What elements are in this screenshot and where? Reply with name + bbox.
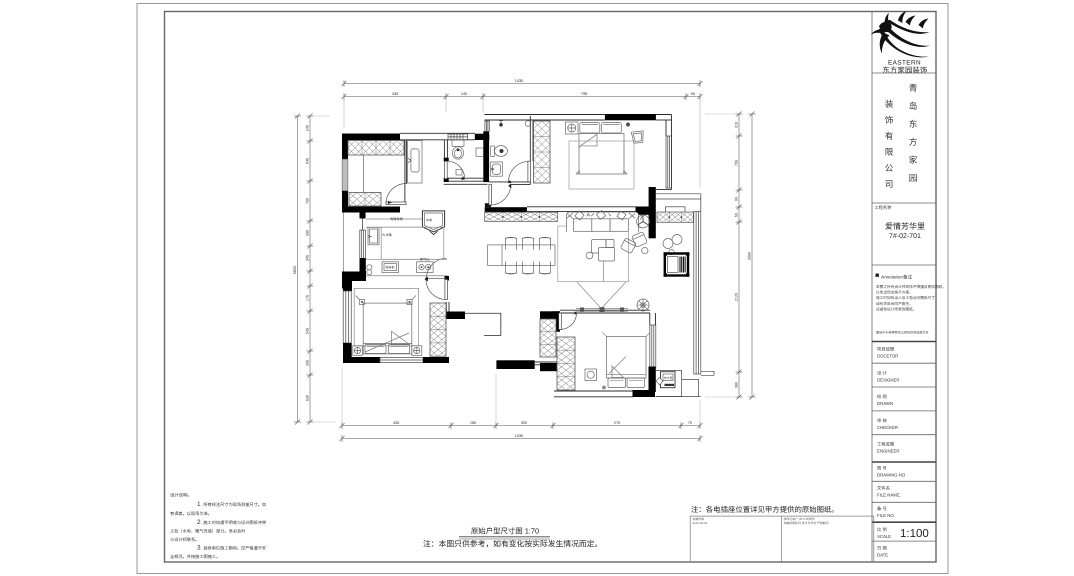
svg-text:DESIGNER: DESIGNER [877, 378, 899, 383]
svg-text:1430: 1430 [515, 434, 523, 438]
svg-text:FILE NO.: FILE NO. [877, 513, 895, 518]
svg-text:310: 310 [735, 122, 739, 128]
svg-text:请有关年会同严委托，: 请有关年会同严委托， [876, 301, 913, 306]
svg-text:设计说明。: 设计说明。 [170, 493, 192, 498]
svg-text:绘 图: 绘 图 [877, 394, 887, 399]
svg-text:. 施工时如遇不明或与设计图纸冲突: . 施工时如遇不明或与设计图纸冲突 [201, 520, 267, 525]
svg-text:345: 345 [306, 255, 310, 261]
svg-text:7#-02-701: 7#-02-701 [889, 233, 921, 240]
svg-text:755: 755 [735, 160, 739, 166]
svg-text:75: 75 [688, 421, 692, 425]
svg-text:570: 570 [614, 421, 620, 425]
svg-text:园: 园 [909, 173, 918, 183]
svg-text:全规范。并按施工图施工。: 全规范。并按施工图施工。 [170, 554, 220, 559]
svg-text:3960: 3960 [748, 252, 752, 260]
svg-text:5800: 5800 [293, 266, 297, 274]
svg-text:东方家园装饰: 东方家园装饰 [883, 66, 928, 75]
svg-text:1:100: 1:100 [900, 528, 929, 540]
svg-text:设 计: 设 计 [877, 371, 887, 376]
svg-text:装: 装 [885, 99, 894, 109]
svg-text:SCALE: SCALE [877, 534, 891, 539]
svg-text:330: 330 [306, 230, 310, 236]
svg-text:司: 司 [885, 179, 894, 189]
svg-text:DRAWING NO: DRAWING NO [877, 473, 906, 478]
svg-text:工程名称: 工程名称 [875, 205, 893, 210]
svg-text:350: 350 [521, 421, 527, 425]
svg-text:630: 630 [306, 395, 310, 401]
svg-text:图纸中水电等管线以现场验收结算为准: 图纸中水电等管线以现场验收结算为准 [876, 331, 929, 335]
svg-text:240: 240 [306, 125, 310, 131]
svg-text:2120: 2120 [735, 293, 739, 301]
svg-text:2019-09-06: 2019-09-06 [693, 521, 708, 525]
svg-text:175: 175 [306, 295, 310, 301]
svg-text:DOCETOR: DOCETOR [877, 354, 898, 359]
svg-text:热水器: 热水器 [664, 376, 673, 380]
svg-text:公: 公 [885, 163, 894, 173]
svg-text:与设计师联系。: 与设计师联系。 [170, 537, 199, 542]
svg-text:方: 方 [909, 137, 918, 147]
svg-text:日 期: 日 期 [877, 546, 887, 551]
svg-text:430: 430 [393, 421, 399, 425]
svg-text:DRAWN: DRAWN [877, 401, 893, 406]
svg-text:本图之所有设计师现场不得擅自更改图纸，: 本图之所有设计师现场不得擅自更改图纸， [876, 284, 946, 289]
svg-text:60: 60 [691, 92, 695, 96]
svg-text:电器台面: 电器台面 [390, 217, 404, 221]
svg-text:Annotation备注: Annotation备注 [881, 274, 913, 279]
svg-text:750: 750 [306, 198, 310, 204]
svg-text:家: 家 [909, 155, 918, 165]
svg-text:360: 360 [735, 382, 739, 388]
svg-text:饰: 饰 [885, 115, 894, 125]
svg-text:审 核: 审 核 [877, 418, 887, 423]
svg-text:545: 545 [306, 328, 310, 334]
svg-text:55: 55 [735, 213, 739, 217]
svg-text:应避免设计师更改图纸。: 应避免设计师更改图纸。 [876, 306, 917, 311]
svg-text:青: 青 [909, 83, 918, 93]
svg-text:本图纸版权归 设计方所有 严禁翻印: 本图纸版权归 设计方所有 严禁翻印 [784, 521, 829, 525]
svg-text:限: 限 [885, 147, 894, 157]
svg-text:东: 东 [909, 119, 918, 129]
svg-text:爱情芳华里: 爱情芳华里 [885, 222, 925, 231]
svg-text:岛: 岛 [909, 101, 918, 111]
svg-text:ENGINEER: ENGINEER [877, 449, 899, 454]
svg-text:大冰箱: 大冰箱 [382, 233, 392, 237]
svg-text:798: 798 [581, 92, 587, 96]
svg-text:以免出现余施平方案。: 以免出现余施平方案。 [876, 290, 913, 295]
svg-text:水盆: 水盆 [426, 218, 433, 222]
svg-text:有: 有 [885, 131, 894, 141]
svg-text:注：本图只供参考，如有变化按实际发生情况而定。: 注：本图只供参考，如有变化按实际发生情况而定。 [423, 540, 602, 549]
svg-text:CHECKER: CHECKER [877, 425, 898, 430]
svg-text:140: 140 [461, 92, 467, 96]
svg-text:DATE: DATE [877, 553, 888, 558]
svg-text:有误差。以现场为准。: 有误差。以现场为准。 [170, 511, 212, 516]
svg-text:文件名: 文件名 [877, 486, 890, 491]
svg-text:图 号: 图 号 [877, 466, 887, 471]
svg-text:545: 545 [306, 158, 310, 164]
svg-text:工程监理: 工程监理 [877, 442, 895, 447]
svg-text:项目经理: 项目经理 [877, 347, 895, 352]
svg-text:330: 330 [306, 360, 310, 366]
svg-text:之处（水电、暖气改装）部分。务必及时: 之处（水电、暖气改装）部分。务必及时 [170, 529, 246, 534]
svg-text:备 号: 备 号 [877, 506, 887, 511]
svg-text:FILE NAME.: FILE NAME. [877, 493, 901, 498]
svg-text:原始户型尺寸图 1:70: 原始户型尺寸图 1:70 [471, 527, 539, 536]
svg-text:燃气灶: 燃气灶 [420, 258, 430, 262]
svg-text:. 所有标注尺寸为现场测量尺寸。如: . 所有标注尺寸为现场测量尺寸。如 [201, 502, 266, 507]
svg-text:比 例: 比 例 [877, 527, 887, 532]
svg-text:90: 90 [735, 197, 739, 201]
svg-text:. 装修单位施工期间。应严格遵守安: . 装修单位施工期间。应严格遵守安 [201, 546, 266, 551]
svg-text:430: 430 [392, 92, 398, 96]
svg-text:180: 180 [470, 421, 476, 425]
svg-text:1430: 1430 [515, 79, 523, 83]
svg-text:消毒柜: 消毒柜 [385, 266, 395, 270]
svg-text:注：各电插座位置详见甲方提供的原始图纸。: 注：各电插座位置详见甲方提供的原始图纸。 [691, 505, 839, 514]
svg-text:施工时如有出入及工电点问图纸尺寸，: 施工时如有出入及工电点问图纸尺寸， [876, 295, 939, 300]
